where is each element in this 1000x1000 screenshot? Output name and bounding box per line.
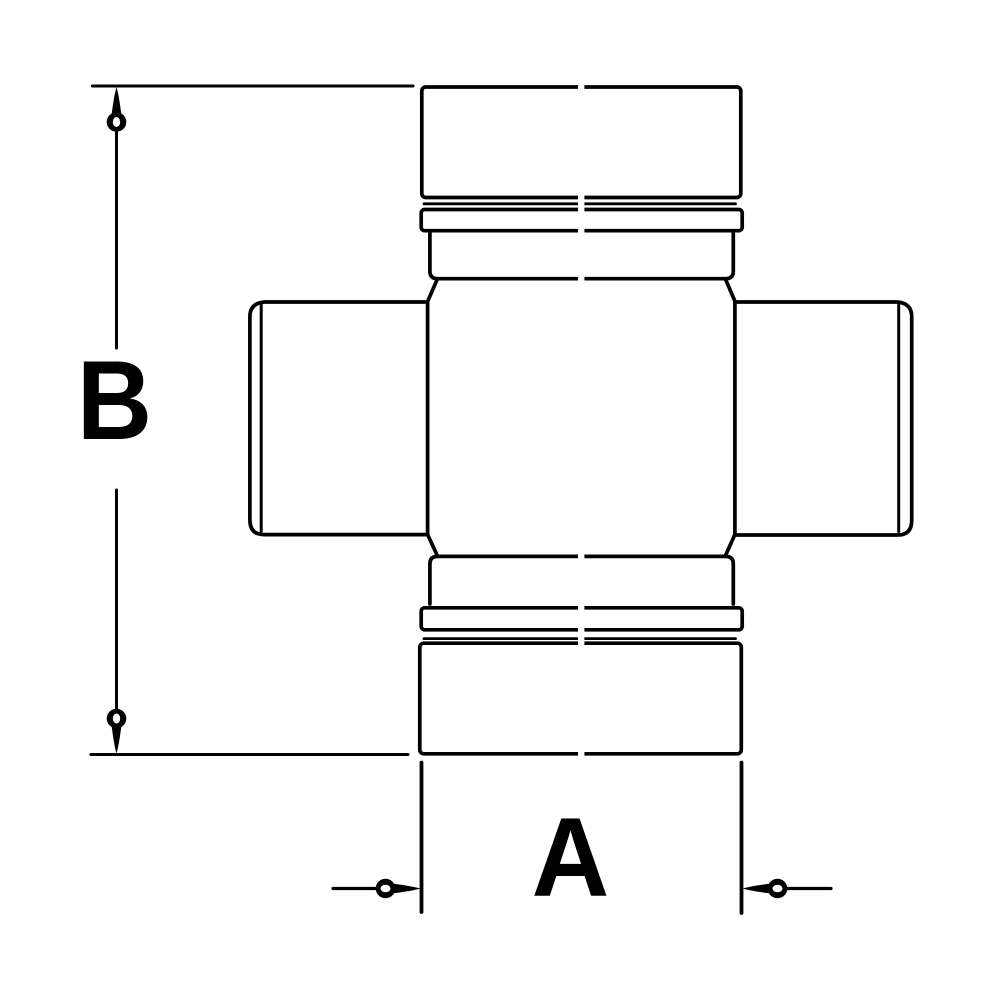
- svg-text:A: A: [532, 796, 610, 920]
- svg-text:B: B: [77, 338, 152, 463]
